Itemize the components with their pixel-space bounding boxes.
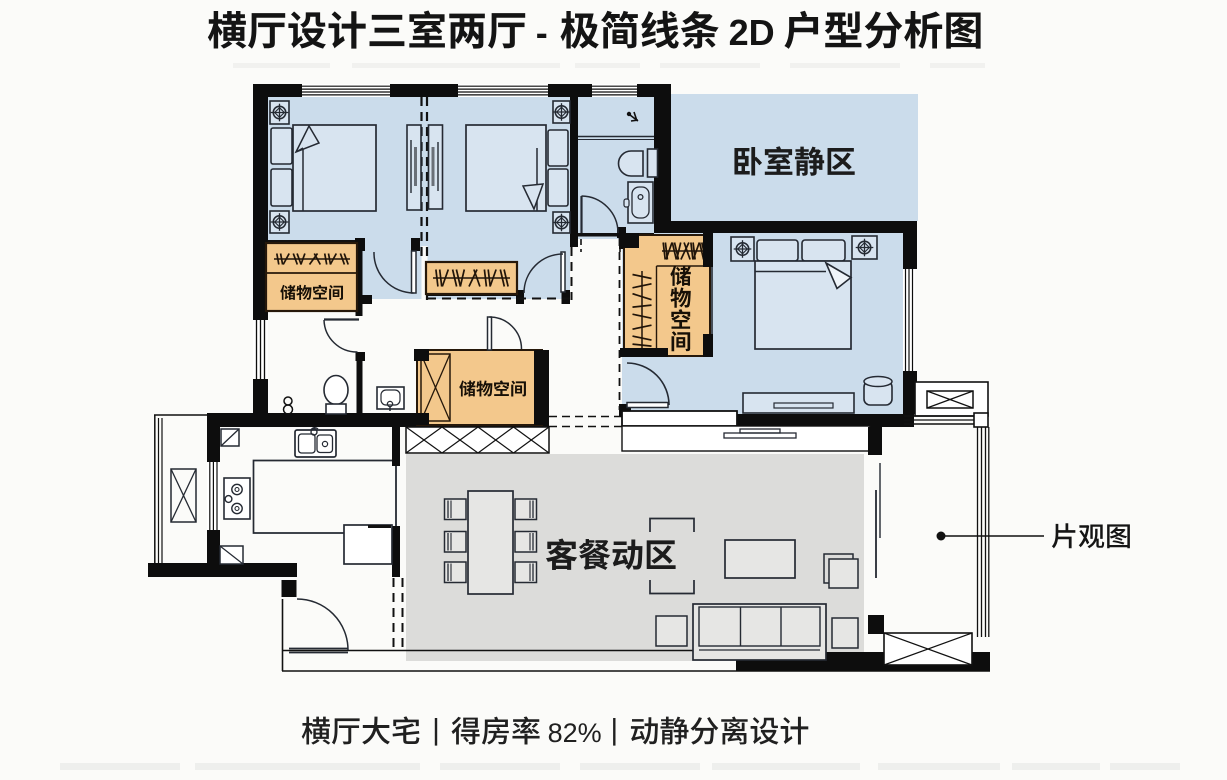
svg-text:2D: 2D (729, 12, 775, 53)
svg-text:-: - (536, 12, 548, 53)
svg-text:82%: 82% (548, 718, 602, 748)
